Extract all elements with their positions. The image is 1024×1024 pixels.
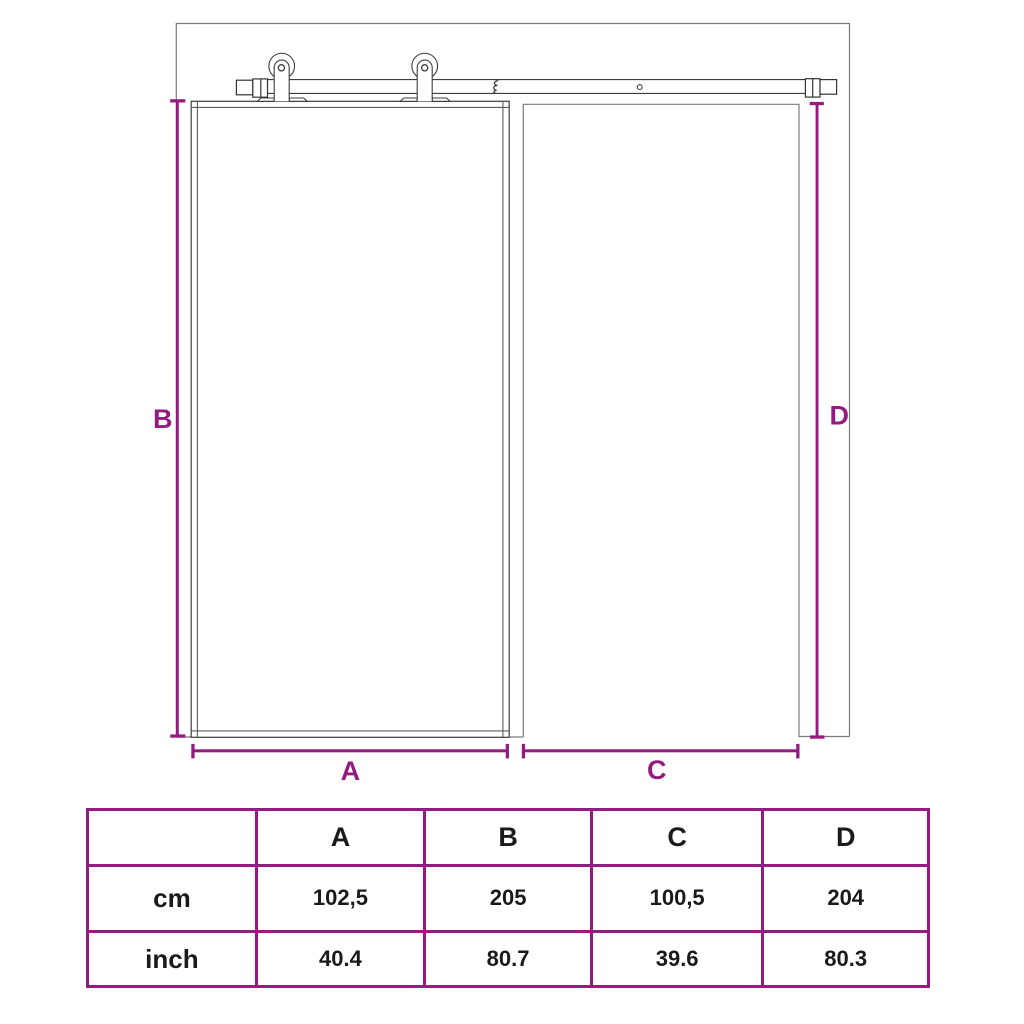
svg-text:B: B — [153, 404, 173, 434]
svg-text:C: C — [647, 755, 667, 785]
svg-text:D: D — [830, 401, 850, 431]
svg-text:A: A — [341, 756, 361, 786]
